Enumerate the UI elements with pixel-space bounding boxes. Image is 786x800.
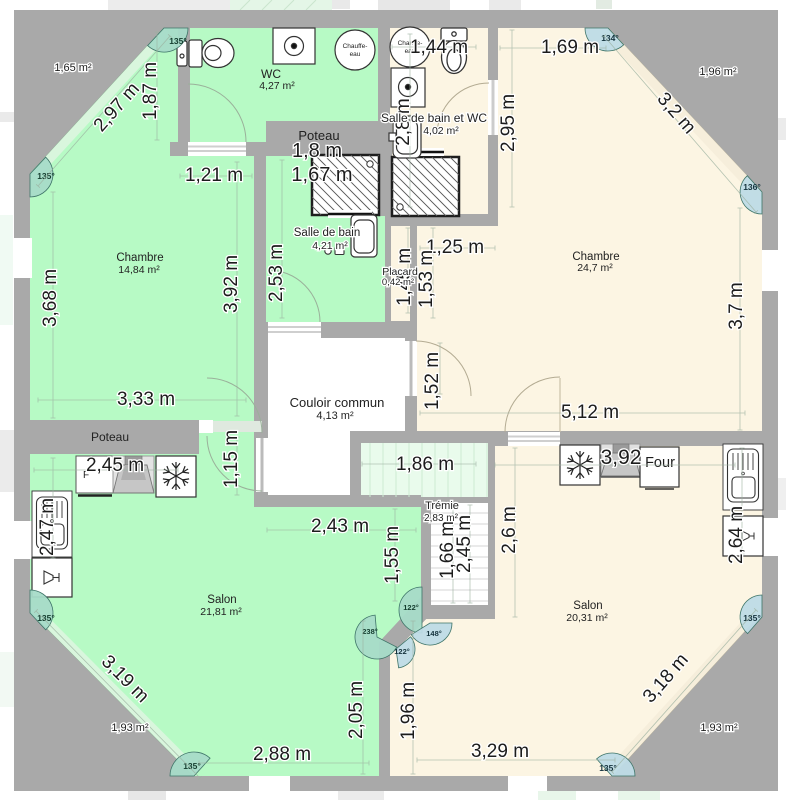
svg-text:1,69 m: 1,69 m: [541, 37, 599, 58]
svg-text:1,65 m²: 1,65 m²: [54, 62, 92, 74]
svg-text:Salon: Salon: [573, 600, 602, 612]
svg-text:3,92 m: 3,92 m: [221, 255, 242, 313]
svg-text:2,64 m: 2,64 m: [726, 506, 747, 564]
svg-text:Salle de bain: Salle de bain: [294, 227, 361, 239]
svg-text:Chauffe-: Chauffe-: [343, 43, 368, 50]
svg-text:134°: 134°: [601, 33, 619, 43]
svg-text:Salle de bain et WC: Salle de bain et WC: [381, 111, 487, 125]
svg-text:1,67 m: 1,67 m: [291, 164, 352, 186]
svg-text:1,52 m: 1,52 m: [422, 352, 443, 410]
svg-text:1,21 m: 1,21 m: [185, 165, 243, 186]
svg-text:135°: 135°: [599, 763, 617, 773]
svg-text:Four: Four: [645, 455, 675, 471]
svg-text:1,53 m: 1,53 m: [416, 250, 437, 308]
svg-text:2,47 m: 2,47 m: [37, 498, 58, 556]
svg-text:2,6 m: 2,6 m: [499, 506, 520, 554]
svg-text:148°: 148°: [426, 629, 442, 638]
svg-text:122°: 122°: [394, 647, 410, 656]
svg-text:238°: 238°: [362, 627, 378, 636]
svg-text:eau: eau: [350, 51, 361, 58]
svg-text:1,87 m: 1,87 m: [140, 62, 161, 120]
svg-text:Couloir commun: Couloir commun: [290, 395, 385, 410]
svg-text:122°: 122°: [403, 603, 419, 612]
svg-text:14,84 m²: 14,84 m²: [118, 264, 160, 276]
svg-text:1,93 m²: 1,93 m²: [111, 722, 149, 734]
svg-text:1,86 m: 1,86 m: [396, 454, 454, 475]
svg-text:1,8 m: 1,8 m: [292, 140, 342, 162]
svg-text:2,43 m: 2,43 m: [311, 516, 369, 537]
svg-text:1,15 m: 1,15 m: [221, 430, 242, 488]
svg-text:20,31 m²: 20,31 m²: [566, 612, 608, 624]
svg-text:4,13 m²: 4,13 m²: [316, 410, 354, 422]
svg-text:1,44 m: 1,44 m: [410, 37, 468, 58]
svg-text:1,55 m: 1,55 m: [382, 526, 403, 584]
svg-text:Trémie: Trémie: [425, 500, 459, 512]
svg-text:3,7 m: 3,7 m: [726, 282, 747, 330]
svg-text:3,33 m: 3,33 m: [117, 389, 175, 410]
svg-text:3,68 m: 3,68 m: [40, 269, 61, 327]
svg-text:5,12 m: 5,12 m: [561, 402, 619, 423]
svg-text:4,27 m²: 4,27 m²: [259, 80, 295, 92]
svg-text:2,88 m: 2,88 m: [253, 744, 311, 765]
svg-text:2,45 m: 2,45 m: [86, 455, 144, 476]
svg-text:3,92: 3,92: [601, 446, 642, 469]
svg-text:Chambre: Chambre: [116, 252, 163, 264]
svg-text:2,95 m: 2,95 m: [498, 94, 519, 152]
svg-text:136°: 136°: [743, 182, 761, 192]
svg-text:2,83 m²: 2,83 m²: [424, 513, 459, 524]
svg-text:4,21 m²: 4,21 m²: [312, 240, 348, 252]
svg-text:4,02 m²: 4,02 m²: [423, 125, 459, 137]
svg-text:Salon: Salon: [207, 594, 236, 606]
svg-text:Poteau: Poteau: [91, 430, 129, 444]
svg-text:0,42 m²: 0,42 m²: [382, 277, 414, 288]
svg-text:24,7 m²: 24,7 m²: [577, 262, 613, 274]
svg-text:1,96 m: 1,96 m: [398, 682, 419, 740]
svg-text:1,96 m²: 1,96 m²: [699, 66, 737, 78]
svg-text:2,05 m: 2,05 m: [346, 681, 367, 739]
svg-text:WC: WC: [261, 67, 281, 81]
svg-text:3,29 m: 3,29 m: [471, 741, 529, 762]
svg-text:2,53 m: 2,53 m: [266, 244, 287, 302]
svg-text:Poteau: Poteau: [298, 128, 339, 143]
svg-text:21,81 m²: 21,81 m²: [200, 606, 242, 618]
svg-text:1,93 m²: 1,93 m²: [700, 722, 738, 734]
